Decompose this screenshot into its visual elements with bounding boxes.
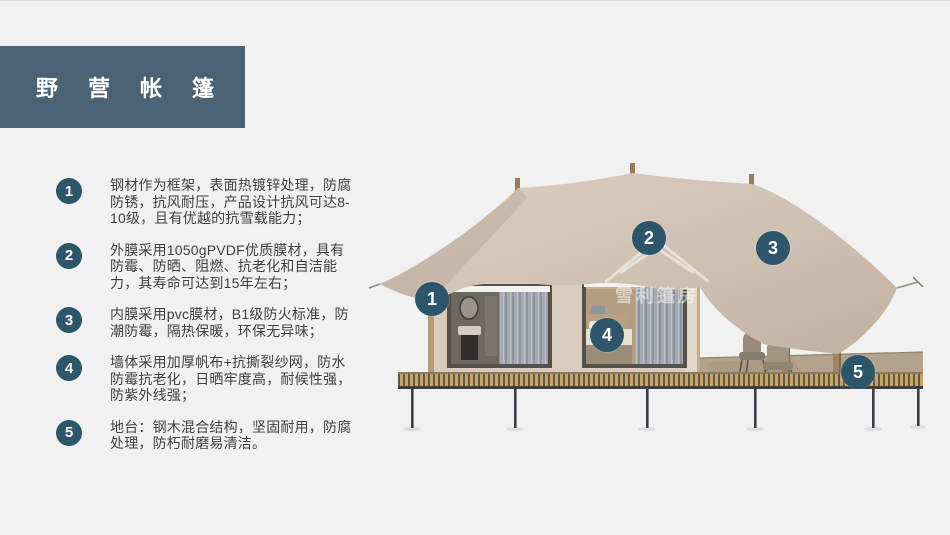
window-bathroom: [447, 284, 552, 368]
feature-text: 地台：钢木混合结构，坚固耐用，防腐处理，防朽耐磨易清洁。: [110, 419, 355, 452]
image-callout-3: 3: [756, 231, 790, 265]
image-callout-2: 2: [632, 221, 666, 255]
feature-text: 外膜采用1050gPVDF优质膜材，具有防霉、防晒、阻燃、抗老化和自洁能力，其寿…: [110, 242, 355, 292]
image-callout-1: 1: [415, 282, 449, 316]
feature-item-3: 3 内膜采用pvc膜材，B1级防火标准，防潮防霉，隔热保暖，环保无异味；: [56, 306, 366, 339]
image-callout-4: 4: [590, 318, 624, 352]
feature-item-4: 4 墙体采用加厚帆布+抗撕裂纱网，防水防霉抗老化，日晒牢度高，耐候性强，防紫外线…: [56, 354, 366, 404]
title-block: 野营帐篷: [0, 46, 245, 128]
guy-rope: [897, 282, 918, 288]
page-title: 野营帐篷: [0, 71, 244, 103]
feature-item-2: 2 外膜采用1050gPVDF优质膜材，具有防霉、防晒、阻燃、抗老化和自洁能力，…: [56, 242, 366, 292]
feature-item-5: 5 地台：钢木混合结构，坚固耐用，防腐处理，防朽耐磨易清洁。: [56, 419, 366, 452]
slide: 野营帐篷 1 钢材作为框架，表面热镀锌处理，防腐防锈，抗风耐压，产品设计抗风可达…: [0, 0, 950, 535]
feature-number-badge: 1: [56, 178, 82, 204]
guy-rope: [913, 277, 923, 287]
feature-number-badge: 5: [56, 420, 82, 446]
feature-item-1: 1 钢材作为框架，表面热镀锌处理，防腐防锈，抗风耐压，产品设计抗风可达8-10级…: [56, 177, 366, 227]
deck-legs: [403, 389, 926, 431]
feature-text: 内膜采用pvc膜材，B1级防火标准，防潮防霉，隔热保暖，环保无异味；: [110, 306, 355, 339]
feature-list: 1 钢材作为框架，表面热镀锌处理，防腐防锈，抗风耐压，产品设计抗风可达8-10级…: [56, 177, 366, 467]
terrace: [700, 352, 923, 374]
feature-number-badge: 2: [56, 243, 82, 269]
feature-number-badge: 3: [56, 307, 82, 333]
feature-text: 墙体采用加厚帆布+抗撕裂纱网，防水防霉抗老化，日晒牢度高，耐候性强，防紫外线强；: [110, 354, 355, 404]
feature-number-badge: 4: [56, 355, 82, 381]
mirror: [460, 297, 478, 319]
curtain: [499, 288, 548, 364]
vanity-cabinet: [461, 335, 478, 360]
deck-frame: [398, 386, 923, 389]
image-callout-5: 5: [841, 355, 875, 389]
watermark-text: 雪利篷房: [615, 285, 699, 306]
tent-illustration: 雪利篷房: [365, 156, 940, 446]
sink: [458, 326, 481, 335]
guy-rope: [369, 284, 380, 288]
feature-text: 钢材作为框架，表面热镀锌处理，防腐防锈，抗风耐压，产品设计抗风可达8-10级，且…: [110, 177, 355, 227]
